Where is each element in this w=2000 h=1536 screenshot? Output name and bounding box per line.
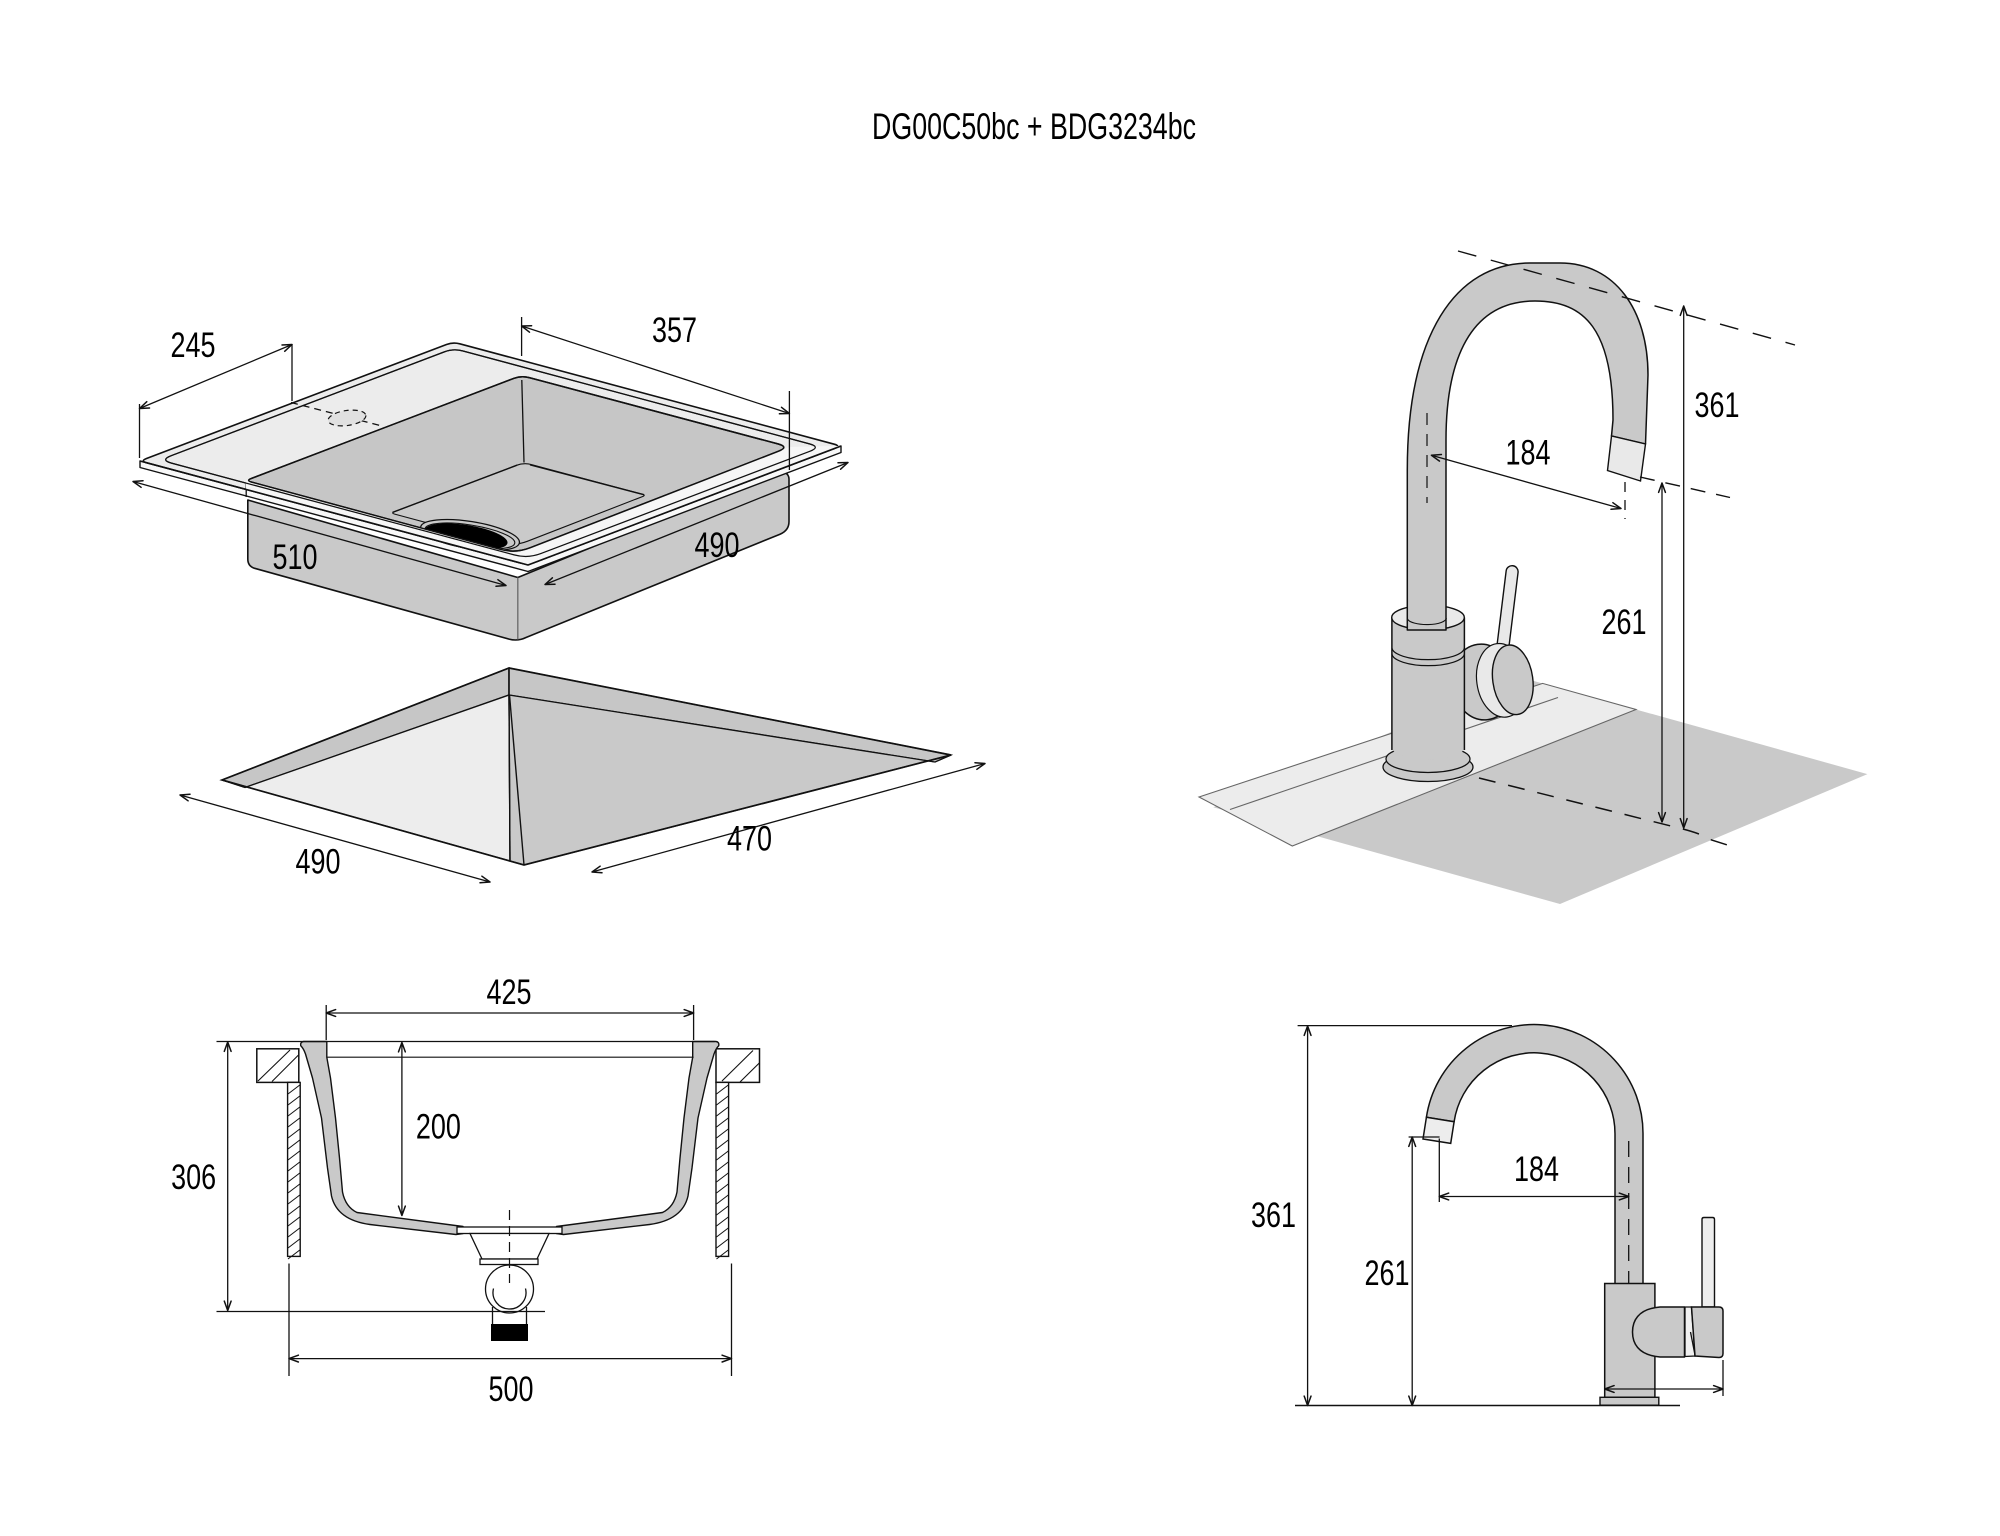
svg-text:425: 425 [487,973,532,1012]
svg-text:361: 361 [1695,386,1740,425]
svg-text:306: 306 [171,1158,216,1197]
svg-text:200: 200 [416,1107,461,1146]
svg-text:510: 510 [273,538,318,577]
svg-text:184: 184 [1506,434,1551,473]
svg-text:DG00C50bc + BDG3234bc: DG00C50bc + BDG3234bc [872,106,1196,147]
svg-text:470: 470 [727,820,772,859]
svg-text:245: 245 [171,326,216,365]
svg-text:357: 357 [652,311,697,350]
svg-text:490: 490 [296,843,341,882]
svg-text:261: 261 [1365,1254,1410,1293]
svg-text:261: 261 [1602,603,1647,642]
svg-text:361: 361 [1251,1196,1296,1235]
svg-text:500: 500 [489,1370,534,1409]
svg-text:184: 184 [1514,1150,1559,1189]
svg-text:490: 490 [695,526,740,565]
